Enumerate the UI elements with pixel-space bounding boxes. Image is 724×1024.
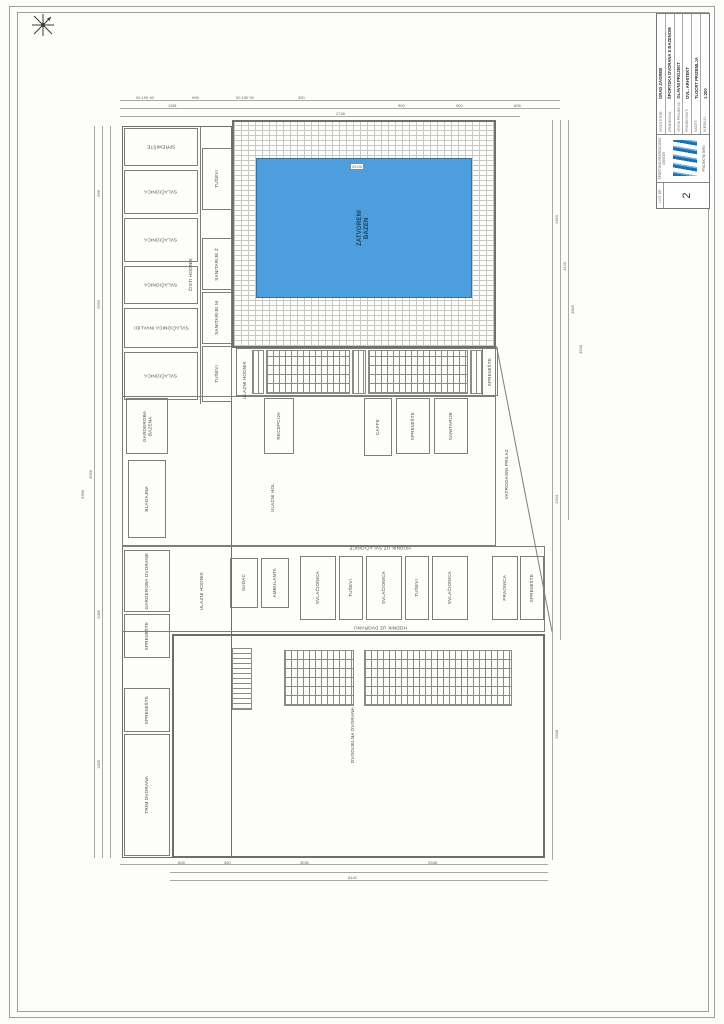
dimension-text: 3030 [300,860,309,865]
dimension-text: 8142 [348,875,357,880]
title-block-field-value: OVL. ARHITEKT [685,67,690,99]
room-caffe: CAFFE [364,398,392,456]
room-label: SANITARIJE Ž [214,248,220,281]
room-label: RECEPCIJA [276,412,282,440]
title-block-row: PROJEKTANT: OVL. ARHITEKT [683,14,692,134]
tribune-stairs [252,350,264,394]
room-blagajna: BLAGAJNA [128,460,166,538]
room-label: SVLAČIONICA [144,282,177,288]
room-sudac: SUDAC [230,558,258,608]
title-block-rows: INVESTITOR: GRAD ZAGREB GRAĐEVINA: ŠPORT… [657,14,709,134]
dimension-line [102,126,103,858]
room-sanitarije-: SANITARIJE Ž [202,238,232,290]
room-label: SANITARIJE M [214,301,220,335]
room-label: ULAZNI HOL [270,483,276,512]
title-block-field-label: PROJEKTANT: [685,102,689,132]
dimension-text: 2748 [336,111,345,116]
logo-caption-bottom: PROJEKTNI BIRO [703,145,707,172]
room-label: TUŠEVI [348,579,354,597]
title-block-field-value: GLAVNI PROJEKT [676,62,681,98]
room-label: SVLAČIONICA [144,189,177,195]
dimension-line [560,120,561,640]
dimension-text: 995 [192,95,199,100]
room-praonica: PRAONICA [492,556,518,620]
title-block-row: GRAĐEVINA: ŠPORTSKA DVORANA S BAZENOM [666,14,675,134]
tribune-stairs [470,350,482,394]
room-spremi-te: SPREMIŠTE [520,556,544,620]
title-block-row: NACRT: TLOCRT PRIZEMLJA [692,14,701,134]
room-hodnik-uz-svla-ionice: HODNIK UZ SVLAČIONICE [290,543,470,553]
room-tu-evi: TUŠEVI [339,556,363,620]
dimension-text: 90 190 90 [136,95,154,100]
dimension-line [170,880,548,881]
dimension-line [120,116,520,117]
pool: ZATVORENI BAZEN [256,158,472,298]
dimension-text: 2948 [428,860,437,865]
room-sanitarije: SANITARIJE [434,398,468,454]
title-block: LIST BR. 2 ŠPORTSKO-REKREACIJSKI CENTAR … [656,13,710,209]
title-block-field-label: MJERILO: [703,102,707,132]
title-block-field-value: TLOCRT PRIZEMLJA [694,57,699,99]
dimension-text: 608 [178,860,185,865]
room-label: SVLAČIONICA [315,571,321,604]
dimension-text: 3145 [562,262,567,271]
room-label: TUŠEVI [214,170,220,188]
room-label: PRAONICA [502,575,508,601]
room-trim-dvorana: TRIM DVORANA [124,734,170,856]
dimension-text: 1294 [554,495,559,504]
room-label: TUŠEVI [214,365,220,383]
title-block-field-label: GRAĐEVINA: [668,102,672,132]
dimension-text: 900 [398,103,405,108]
room-label: DVODIJELNA DVORANA [350,707,356,763]
room-label: TUŠEVI [414,579,420,597]
title-block-row: VRSTA PROJEKTA: GLAVNI PROJEKT [675,14,684,134]
room-label: TRIM DVORANA [144,776,150,814]
dimension-text: 9366 [80,490,85,499]
room-label: SUDAC [241,574,247,591]
dimension-text: 300 [298,95,305,100]
room-ambulanta: AMBULANTA [261,558,289,608]
room-tu-evi: TUŠEVI [405,556,429,620]
room-svla-ionica: SVLAČIONICA [124,352,198,400]
wall-corridor [200,126,201,404]
title-block-row: INVESTITOR: GRAD ZAGREB [657,14,666,134]
room-svla-ionica: SVLAČIONICA [366,556,402,620]
room-label: AMBULANTA [272,568,278,598]
room-label: ULAZNI HODNIK [199,572,205,610]
room-hodnik-uz-dvoranu: HODNIK UZ DVORANU [290,623,470,633]
dimension-text: 585 [96,190,101,197]
room-label: SPREMIŠTE [144,622,150,650]
room-sanitarije-m: SANITARIJE M [202,292,232,344]
dimension-line [94,126,95,858]
firm-logo: ŠPORTSKO-REKREACIJSKI CENTAR PROJEKTNI B… [657,134,709,182]
dimension-text: 300 [224,860,231,865]
room-label: SANITARIJE [448,412,454,440]
room-tu-evi: TUŠEVI [202,148,232,210]
room-label: VATROGASNI PRILAZ [504,449,510,499]
drawing-sheet: LIST BR. 2 ŠPORTSKO-REKREACIJSKI CENTAR … [0,0,724,1024]
room-recepcija: RECEPCIJA [264,398,294,454]
room-svla-ionica: SVLAČIONICA [432,556,468,620]
dimension-text: 3036 [88,470,93,479]
room-label: SPREMIŠTE [487,358,493,386]
room-label: HODNIK UZ SVLAČIONICE [349,545,411,551]
room-spremi-te: SPREMIŠTE [124,688,170,732]
sheet-number-label: LIST BR. [657,183,664,208]
dimension-line [552,120,553,860]
dimension-text: 608 [514,103,521,108]
dimension-text: 2085 [96,610,101,619]
dimension-line [170,872,548,873]
logo-caption-top: ŠPORTSKO-REKREACIJSKI CENTAR [659,136,666,181]
room-label: HODNIK UZ DVORANU [354,625,407,631]
room-label: SPREMIŠTE [410,412,416,440]
logo-stripes-icon [673,141,697,177]
dimension-text: 2550 [96,300,101,309]
room-label: SVLAČIONICA [144,237,177,243]
room--isti-hodnik: ČISTI HODNIK [184,230,198,320]
room-spremi-te: SPREMIŠTE [124,614,170,658]
room-label: SVLAČIONICA [144,373,177,379]
title-block-field-label: NACRT: [694,102,698,132]
room-ulazni-hodnik: ULAZNI HODNIK [194,552,210,630]
dimension-text: 2948 [554,730,559,739]
title-block-field-label: INVESTITOR: [659,102,663,132]
room-label: SVLAČIONICA [381,571,387,604]
dimension-text: 1485 [96,760,101,769]
room-svla-ionica: SVLAČIONICA [124,170,198,214]
tribune-stairs [352,350,366,394]
north-arrow-icon [30,12,56,38]
dimension-line [120,108,560,109]
room-label: SVLAČIONICA [447,571,453,604]
room-ulazni-hodnik: ULAZNI HODNIK [238,350,251,410]
dimension-text: 1581 [168,103,177,108]
dimension-text: 2450 [554,215,559,224]
tribune-stairs [232,648,252,710]
tribune-seats [364,650,512,706]
title-block-field-value: GRAD ZAGREB [658,68,663,99]
room-label: SVLAČIONICA INVALIDI [134,325,189,331]
room-spremi-te: SPREMIŠTE [124,128,198,166]
room-label: SPREMIŠTE [529,574,535,602]
dimension-line [568,120,569,520]
room-garderoba-bazena: GARDEROBA BAZENA [126,398,168,454]
room-label: GARDEROBA DVORANE [144,553,150,610]
room-label: CAFFE [375,419,381,435]
dimension-text: 3530 [578,345,583,354]
room-garderoba-dvorane: GARDEROBA DVORANE [124,550,170,612]
title-block-field-value: 1:200 [703,88,708,99]
room-ulazni-hol: ULAZNI HOL [256,466,290,530]
dimension-text: 900 [456,103,463,108]
room-vatrogasni-prilaz: VATROGASNI PRILAZ [500,428,513,520]
room-label: SPREMIŠTE [144,696,150,724]
room-label: ULAZNI HODNIK [242,361,248,399]
title-block-row: MJERILO: 1:200 [701,14,709,134]
dimension-line [120,100,560,101]
dimension-text: 3860 [570,305,575,314]
title-block-field-value: ŠPORTSKA DVORANA S BAZENOM [667,27,672,99]
tribune-seats [368,350,468,394]
room-tu-evi: TUŠEVI [202,346,232,402]
room-label: SPREMIŠTE [147,144,175,150]
title-block-sheet-number: LIST BR. 2 [657,182,709,208]
pool-depth-marker: 25,00 [350,163,364,170]
room-label: BLAGAJNA [144,486,150,512]
tribune-seats [266,350,350,394]
room-label: ČISTI HODNIK [188,258,194,291]
pool-label: ZATVORENI BAZEN [357,210,371,246]
sheet-number-value: 2 [664,183,709,208]
room-spremi-te: SPREMIŠTE [396,398,430,454]
dimension-text: 90 190 90 [236,95,254,100]
dimension-line [110,126,111,858]
title-block-field-label: VRSTA PROJEKTA: [677,102,681,132]
room-label: GARDEROBA BAZENA [142,401,153,452]
room-dvodijelna-dvorana: DVODIJELNA DVORANA [336,696,370,774]
room-svla-ionica: SVLAČIONICA [300,556,336,620]
room-spremi-te: SPREMIŠTE [482,348,498,396]
